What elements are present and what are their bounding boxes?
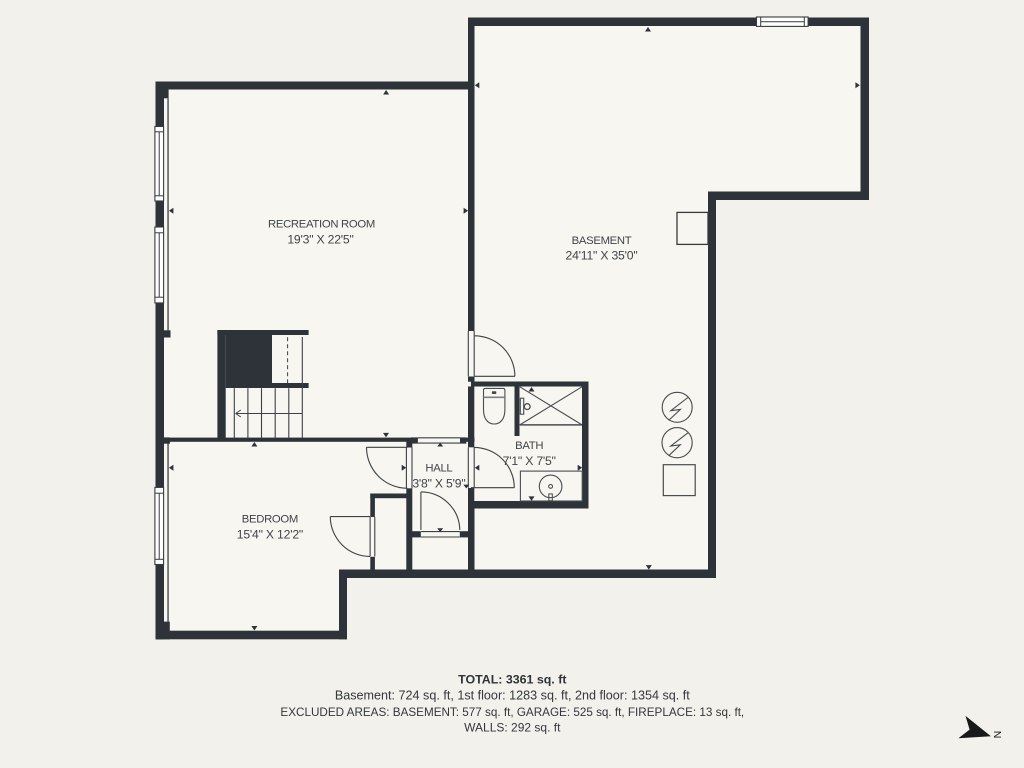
svg-text:15'4" X 12'2": 15'4" X 12'2" [237,527,303,541]
svg-text:N: N [991,731,1003,739]
svg-text:BASEMENT: BASEMENT [572,235,632,247]
svg-text:7'1" X 7'5": 7'1" X 7'5" [503,454,556,468]
svg-text:19'3" X 22'5": 19'3" X 22'5" [287,233,353,247]
svg-text:RECREATION ROOM: RECREATION ROOM [268,219,375,231]
svg-text:Basement: 724 sq. ft, 1st floo: Basement: 724 sq. ft, 1st floor: 1283 sq… [335,689,690,703]
svg-text:HALL: HALL [425,463,452,475]
svg-text:BEDROOM: BEDROOM [242,514,298,526]
svg-text:TOTAL: 3361 sq. ft: TOTAL: 3361 sq. ft [458,673,566,687]
svg-text:3'8" X 5'9": 3'8" X 5'9" [412,477,465,491]
svg-text:WALLS: 292 sq. ft: WALLS: 292 sq. ft [464,721,561,735]
svg-text:24'11" X 35'0": 24'11" X 35'0" [566,248,638,262]
svg-text:BATH: BATH [515,440,543,452]
svg-text:EXCLUDED AREAS: BASEMENT: 577: EXCLUDED AREAS: BASEMENT: 577 sq. ft, GA… [280,706,744,719]
